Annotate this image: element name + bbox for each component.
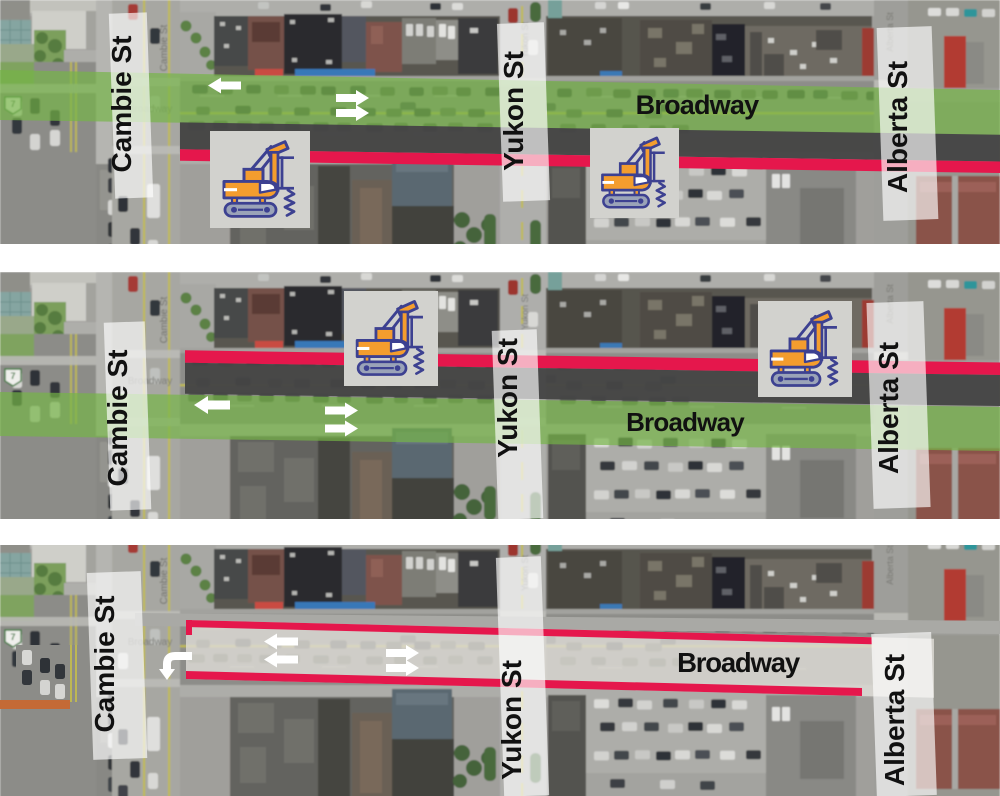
svg-text:Cambie St: Cambie St xyxy=(89,596,120,733)
svg-text:Alberta St: Alberta St xyxy=(879,654,910,786)
svg-text:Yukon St: Yukon St xyxy=(498,51,529,171)
svg-text:Yukon St: Yukon St xyxy=(492,338,523,458)
svg-text:Alberta St: Alberta St xyxy=(873,342,904,474)
svg-text:Broadway: Broadway xyxy=(677,647,801,678)
svg-text:Cambie St: Cambie St xyxy=(102,350,133,487)
svg-text:Cambie St: Cambie St xyxy=(106,36,137,173)
svg-text:Yukon St: Yukon St xyxy=(496,660,527,780)
svg-text:Alberta St: Alberta St xyxy=(882,61,913,193)
svg-text:Broadway: Broadway xyxy=(626,407,745,437)
svg-text:Broadway: Broadway xyxy=(636,90,759,120)
